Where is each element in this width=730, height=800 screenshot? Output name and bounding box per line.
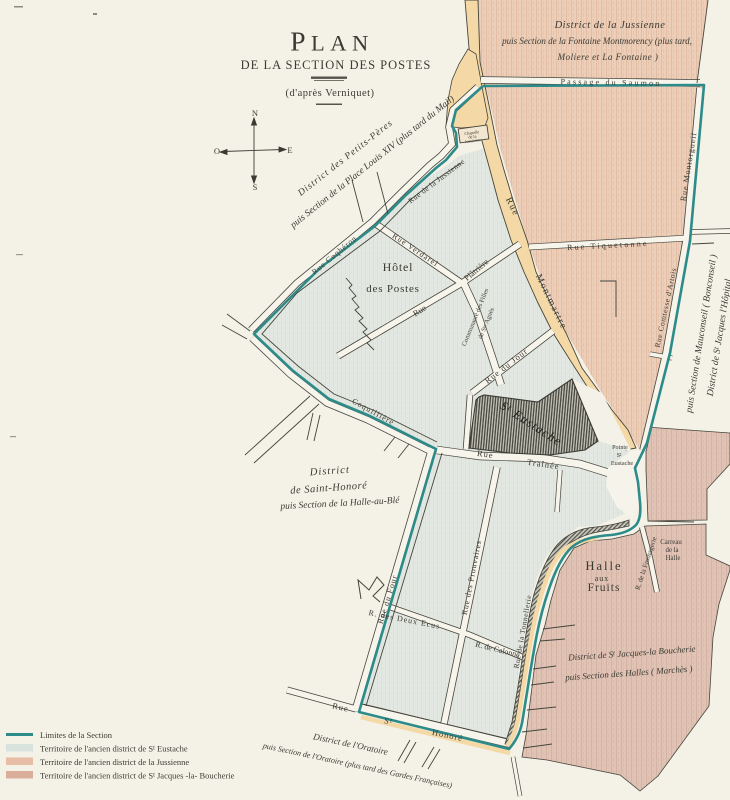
- svg-text:Moliere et La Fontaine ): Moliere et La Fontaine ): [557, 52, 659, 62]
- svg-text:O: O: [214, 146, 220, 156]
- svg-text:Limites de la Section: Limites de la Section: [40, 730, 113, 740]
- svg-text:Territoire de l'ancien distr: Territoire de l'ancien district de St Eu…: [40, 744, 188, 754]
- svg-text:District de la Jussienne: District de la Jussienne: [554, 20, 666, 31]
- svg-text:puis Section de la Fontaine: puis Section de la Fontaine Montmorency …: [501, 36, 692, 46]
- svg-text:Pointe: Pointe: [612, 444, 628, 451]
- svg-text:des Postes: des Postes: [366, 283, 420, 295]
- svg-text:N: N: [252, 108, 258, 118]
- svg-text:DE LA SECTION DES POSTES: DE LA SECTION DES POSTES: [241, 58, 432, 72]
- svg-text:Eustache: Eustache: [611, 460, 634, 467]
- svg-text:S: S: [253, 182, 258, 192]
- svg-text:Territoire de l'ancien distr: Territoire de l'ancien district de la Ju…: [40, 757, 189, 767]
- svg-text:Halle: Halle: [666, 555, 681, 562]
- svg-text:PLAN: PLAN: [290, 26, 374, 57]
- svg-text:Fruits: Fruits: [588, 582, 621, 594]
- svg-text:Territoire de l'ancien distr: Territoire de l'ancien district de St Ja…: [40, 771, 235, 781]
- svg-text:Halle: Halle: [585, 559, 622, 573]
- svg-text:Hôtel: Hôtel: [383, 260, 414, 274]
- svg-text:(d'après Verniquet): (d'après Verniquet): [285, 88, 374, 99]
- svg-text:de la: de la: [665, 547, 678, 554]
- svg-text:Passage du Saumon: Passage du Saumon: [560, 77, 661, 88]
- svg-text:E: E: [287, 145, 292, 155]
- svg-text:Carreau: Carreau: [660, 539, 682, 546]
